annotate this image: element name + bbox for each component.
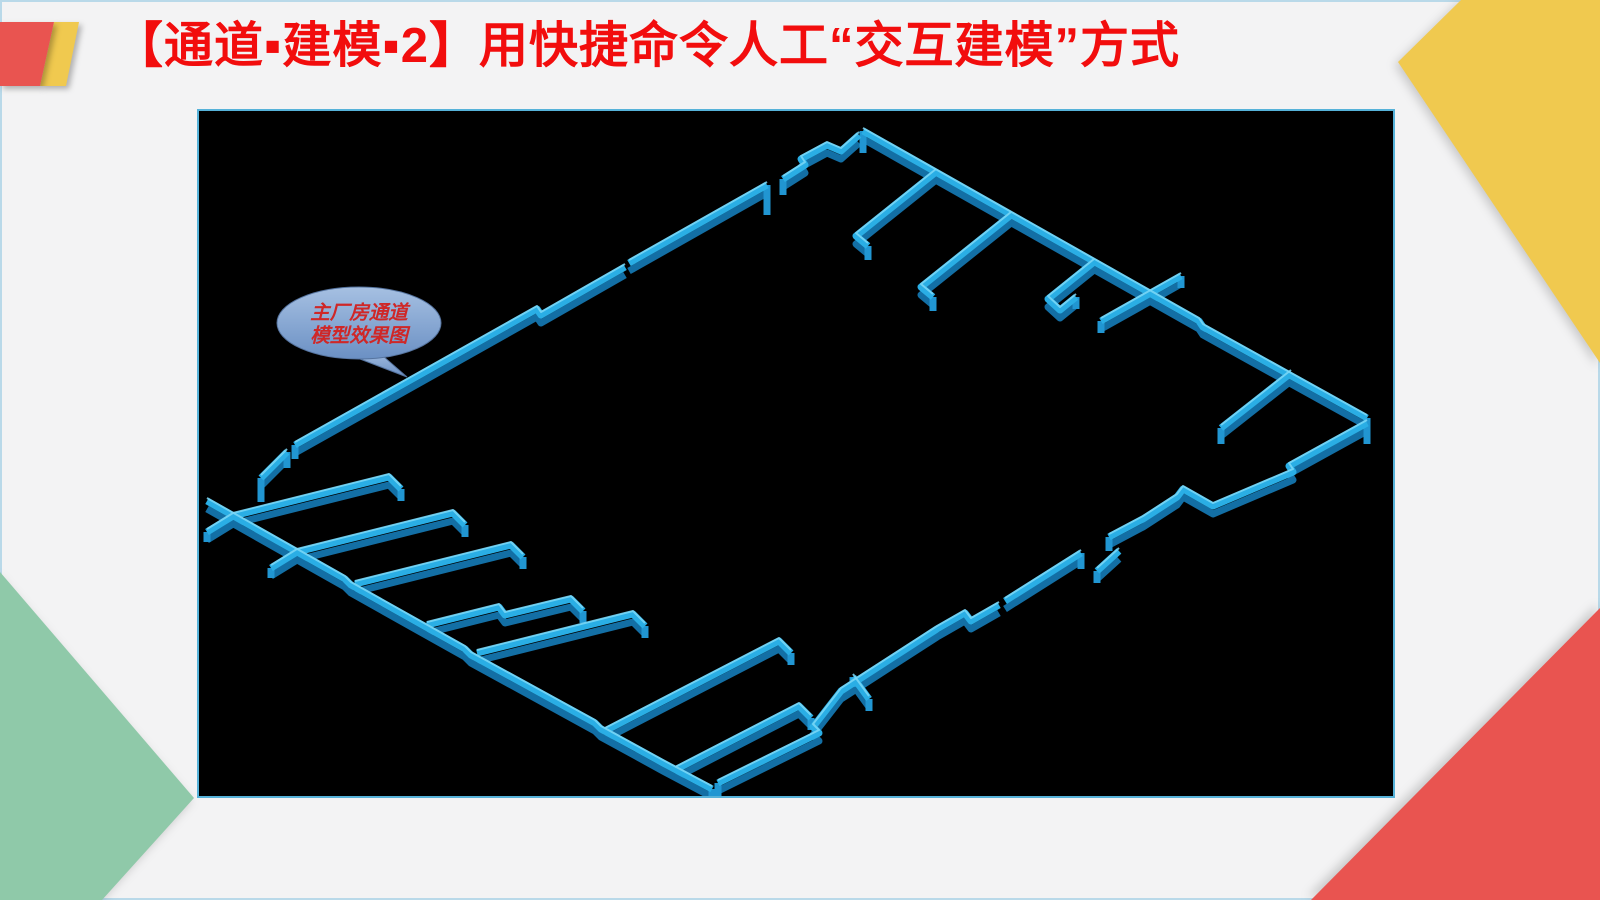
slide: { "slide": { "title": "【通道▪建模▪2】用快捷命令人工“… [0,0,1600,900]
wall-segment [297,513,465,552]
wall-segment [297,521,465,560]
corner-shape-top-right [1398,0,1600,363]
wall-segment [207,498,712,786]
wall-segment [629,182,767,260]
wall-model-drawing: 主厂房通道 模型效果图 [199,111,1393,796]
wall-segment [207,509,712,796]
wall-segment [1005,550,1081,598]
wall-segment [1221,381,1291,436]
wall-segment [1005,561,1081,609]
wall-geometry [207,128,1367,796]
corner-shape-bottom-left [0,572,194,900]
callout-text-line2: 模型效果图 [310,325,411,347]
callout-text-line1: 主厂房通道 [310,302,411,324]
callout-bubble: 主厂房通道 模型效果图 [277,287,441,377]
wall-segment [477,622,645,661]
slide-title: 【通道▪建模▪2】用快捷命令人工“交互建模”方式 [114,6,1414,77]
wall-segment [1221,373,1291,428]
wall-segment [355,553,523,592]
wall-segment [921,223,1011,305]
wall-segment [1005,553,1081,601]
cad-viewport: 主厂房通道 模型效果图 [197,109,1395,798]
wall-segment [355,545,523,584]
wall-segment [629,193,767,271]
wall-segment [629,185,767,263]
wall-segment [1109,423,1367,537]
wall-segment [1221,370,1291,425]
